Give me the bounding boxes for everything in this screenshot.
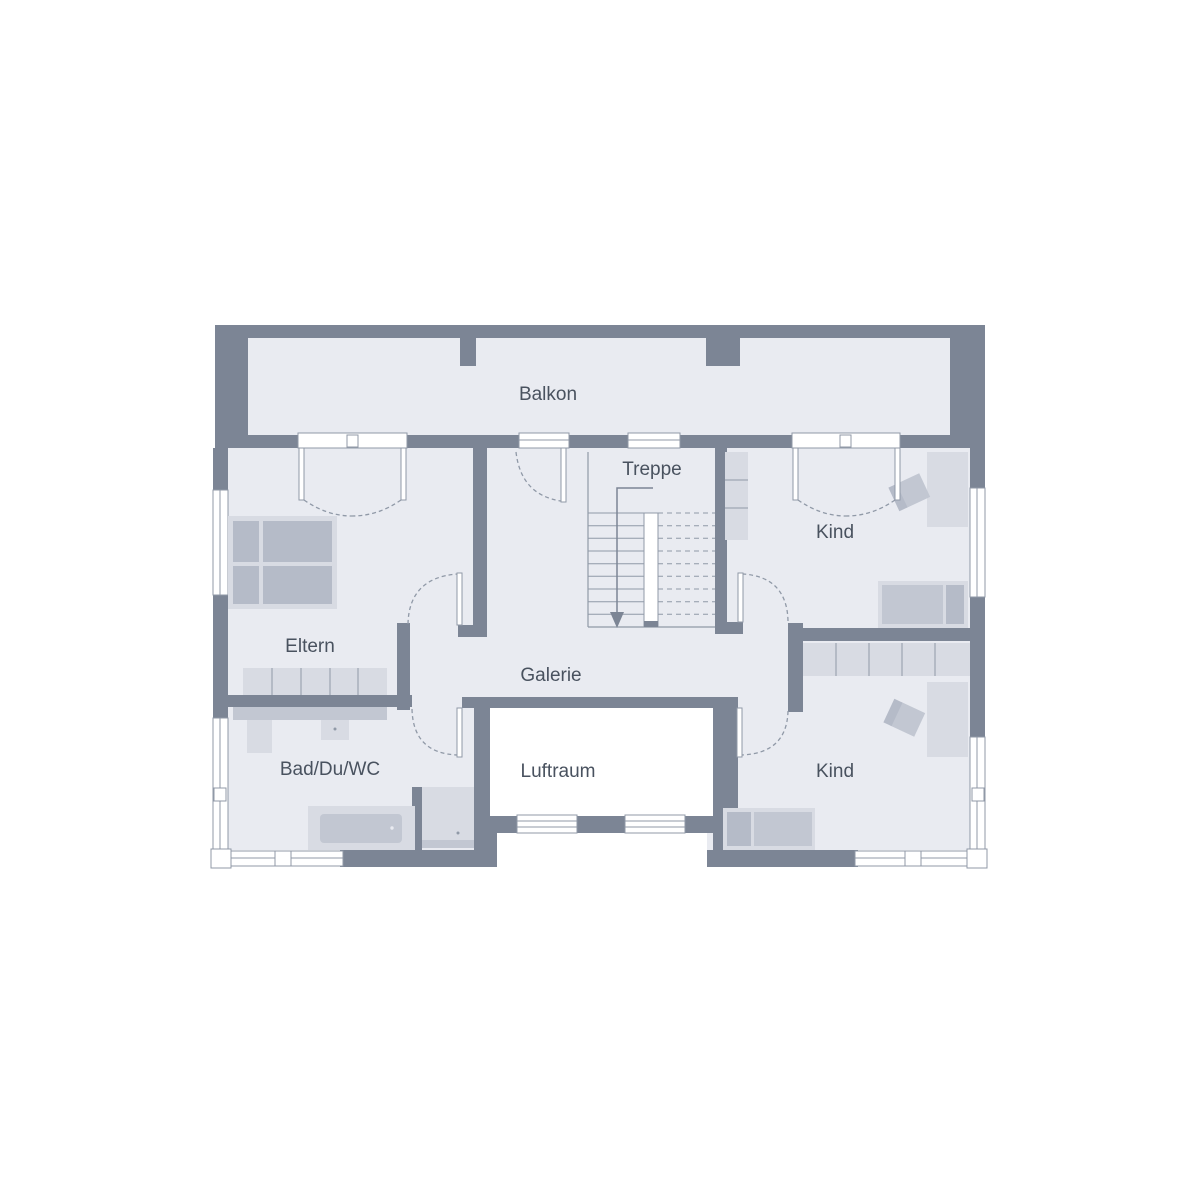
bed-mattress	[754, 812, 812, 846]
bed-eltern	[228, 516, 337, 609]
wall-balcony-stub-2	[706, 338, 740, 366]
door-leaf	[895, 448, 900, 500]
desk	[927, 682, 968, 757]
bed-mattress	[882, 585, 943, 624]
label-treppe: Treppe	[622, 459, 682, 480]
wall-eltern-bad	[215, 695, 412, 707]
tub-drain	[390, 826, 393, 829]
stair-railing-cap	[644, 621, 658, 627]
desk	[927, 452, 968, 527]
bed-pillow	[233, 566, 259, 604]
washbasin	[247, 720, 272, 753]
wall-west-1	[213, 448, 228, 490]
shower	[422, 787, 474, 848]
bathtub-basin	[320, 814, 402, 843]
wardrobe	[725, 452, 748, 540]
label-luftraum: Luftraum	[521, 761, 596, 782]
luftraum-window-2	[625, 815, 685, 833]
door-leaf-bad	[457, 708, 462, 757]
window-corner-post	[211, 849, 231, 868]
door-leaf-kind-bottom	[737, 708, 742, 757]
wall-luftraum-north	[462, 697, 738, 708]
window-corner-post	[967, 849, 987, 868]
wall-balcony-stub-1	[460, 338, 476, 366]
wall-east-2	[970, 597, 985, 740]
label-balkon: Balkon	[519, 384, 577, 405]
basin-drain	[334, 728, 337, 731]
shower-drain	[457, 832, 460, 835]
facade-recess	[497, 833, 707, 890]
wall-balcony-south-3	[569, 435, 628, 448]
wall-kind-bottom-north	[788, 628, 970, 641]
vanity-counter	[233, 707, 387, 720]
wall-eltern-door-stub	[458, 625, 487, 637]
door-leaf-kind-top	[738, 573, 743, 622]
balcony-door-mullion	[347, 435, 358, 447]
wardrobe	[803, 643, 970, 676]
door-leaf	[299, 448, 304, 500]
bed-mattress	[263, 566, 332, 604]
wall-south-right	[707, 850, 858, 867]
wardrobe-eltern	[243, 668, 387, 695]
void-areas	[487, 708, 713, 890]
label-galerie: Galerie	[520, 665, 581, 686]
door-leaf	[401, 448, 406, 500]
window-post	[214, 788, 226, 801]
door-leaf	[561, 448, 566, 502]
wall-east-1	[970, 448, 985, 488]
door-leaf	[793, 448, 798, 500]
wall-eltern-east	[473, 435, 487, 625]
label-bad: Bad/Du/WC	[280, 759, 380, 780]
wall-outer-north	[215, 325, 985, 338]
shower-edge	[422, 840, 474, 848]
wall-kind-top-door-stub	[715, 622, 743, 634]
wall-balcony-west	[215, 338, 248, 448]
label-kind-bottom: Kind	[816, 761, 854, 782]
wall-balcony-south-5	[900, 435, 950, 448]
wall-balcony-south-1	[248, 435, 298, 448]
floorplan-page: Balkon Treppe Kind Eltern Galerie Bad/Du…	[0, 0, 1200, 1200]
window-post	[905, 851, 921, 866]
wardrobe	[243, 668, 387, 695]
window-post	[275, 851, 291, 866]
floorplan-drawing: Balkon Treppe Kind Eltern Galerie Bad/Du…	[0, 0, 1200, 1200]
label-kind-top: Kind	[816, 522, 854, 543]
wall-balcony-south-4	[680, 435, 792, 448]
label-eltern: Eltern	[285, 636, 335, 657]
balcony-door-mullion	[840, 435, 851, 447]
bed-pillow	[233, 521, 259, 562]
balcony-floor	[248, 338, 950, 435]
bed-mattress	[263, 521, 332, 562]
wall-balcony-east	[950, 338, 985, 448]
door-leaf-eltern	[457, 573, 462, 625]
wall-balcony-south-2	[407, 435, 519, 448]
bed-pillow	[946, 585, 964, 624]
stair-railing	[644, 513, 658, 627]
luftraum-window-1	[517, 815, 577, 833]
bed-pillow	[727, 812, 751, 846]
window-post	[972, 788, 984, 801]
